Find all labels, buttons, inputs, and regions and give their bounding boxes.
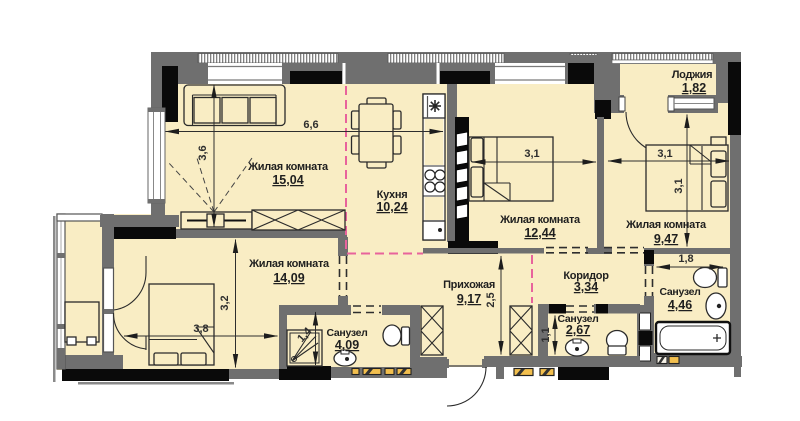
- svg-text:Прихожая: Прихожая: [443, 279, 495, 291]
- svg-text:1,82: 1,82: [682, 81, 706, 95]
- svg-text:15,04: 15,04: [272, 173, 303, 187]
- svg-text:Санузел: Санузел: [659, 286, 700, 298]
- svg-text:9,47: 9,47: [654, 232, 678, 246]
- svg-text:Жилая комната: Жилая комната: [248, 258, 330, 270]
- svg-text:3,34: 3,34: [574, 280, 598, 294]
- svg-text:3,1: 3,1: [657, 148, 672, 160]
- svg-text:1,8: 1,8: [678, 253, 693, 265]
- svg-text:14,09: 14,09: [273, 271, 304, 285]
- svg-text:2,67: 2,67: [566, 323, 590, 337]
- svg-text:2,5: 2,5: [485, 292, 497, 307]
- svg-text:10,24: 10,24: [376, 200, 407, 214]
- svg-text:4,09: 4,09: [335, 338, 359, 352]
- svg-text:3,6: 3,6: [197, 145, 209, 160]
- svg-text:Жилая комната: Жилая комната: [625, 219, 707, 231]
- svg-text:1,1: 1,1: [540, 327, 552, 342]
- svg-text:Жилая комната: Жилая комната: [499, 214, 581, 226]
- svg-text:3,1: 3,1: [673, 178, 685, 193]
- svg-text:6,6: 6,6: [303, 119, 318, 131]
- svg-text:12,44: 12,44: [524, 226, 555, 240]
- svg-text:Жилая комната: Жилая комната: [247, 161, 329, 173]
- svg-text:Лоджия: Лоджия: [672, 69, 712, 81]
- svg-text:9,17: 9,17: [457, 292, 481, 306]
- svg-text:3,8: 3,8: [193, 323, 208, 335]
- svg-text:3,1: 3,1: [524, 148, 539, 160]
- svg-text:3,2: 3,2: [219, 295, 231, 310]
- svg-text:4,46: 4,46: [668, 298, 692, 312]
